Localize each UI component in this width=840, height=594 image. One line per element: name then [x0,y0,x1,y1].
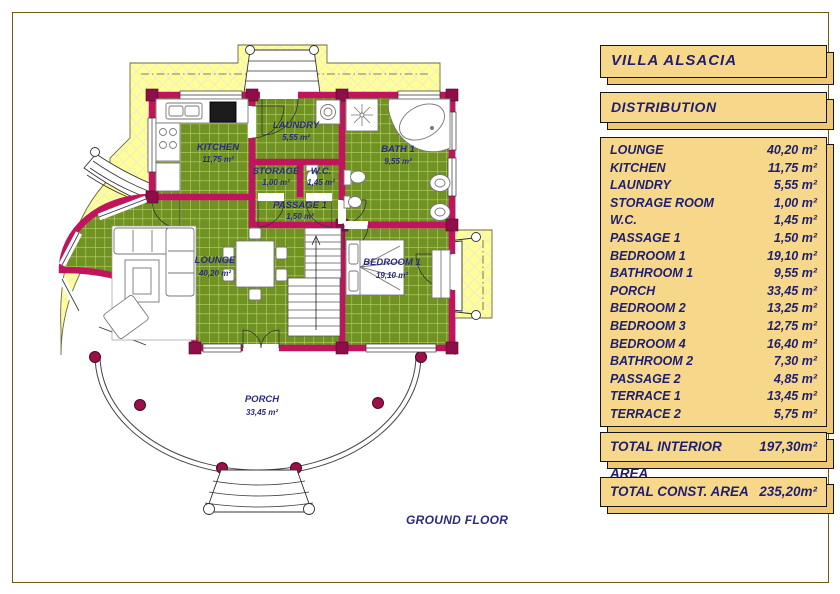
table-row: STORAGE ROOM1,00 m² [610,195,817,213]
row-name: TERRACE 1 [610,388,681,406]
label-wc: W.C. [311,166,331,177]
area-bedroom1: 19,10 m² [376,271,408,280]
total-const-label: TOTAL CONST. AREA [610,478,749,506]
table-row: LOUNGE40,20 m² [610,142,817,160]
row-name: BEDROOM 4 [610,336,686,354]
table-row: BATHROOM 19,55 m² [610,265,817,283]
row-name: LOUNGE [610,142,663,160]
total-const-box: TOTAL CONST. AREA 235,20m² [600,477,827,507]
area-bath1: 9,55 m² [384,157,412,166]
row-name: BEDROOM 1 [610,248,686,266]
distribution-title: DISTRIBUTION [611,99,717,115]
row-name: BEDROOM 2 [610,300,686,318]
row-area: 1,00 m² [774,195,817,213]
total-interior-value: 197,30m² [759,433,817,461]
row-area: 12,75 m² [767,318,817,336]
table-row: BEDROOM 416,40 m² [610,336,817,354]
row-area: 13,45 m² [767,388,817,406]
row-area: 16,40 m² [767,336,817,354]
table-row: BATHROOM 27,30 m² [610,353,817,371]
row-name: BATHROOM 2 [610,353,693,371]
row-area: 19,10 m² [767,248,817,266]
label-bedroom1: BEDROOM 1 [363,257,421,268]
area-porch: 33,45 m² [246,408,278,417]
label-passage1: PASSAGE 1 [273,200,327,211]
row-area: 7,30 m² [774,353,817,371]
row-area: 9,55 m² [774,265,817,283]
table-row: PASSAGE 11,50 m² [610,230,817,248]
row-area: 1,45 m² [774,212,817,230]
total-interior-box: TOTAL INTERIOR AREA 197,30m² [600,432,827,462]
row-area: 1,50 m² [774,230,817,248]
row-area: 5,75 m² [774,406,817,424]
table-row: W.C.1,45 m² [610,212,817,230]
area-lounge: 40,20 m² [198,269,231,278]
label-bath1: BATH 1 [381,144,415,155]
floor-title: GROUND FLOOR [406,513,508,527]
row-area: 33,45 m² [767,283,817,301]
total-interior-label: TOTAL INTERIOR AREA [610,433,759,461]
row-name: STORAGE ROOM [610,195,714,213]
area-passage1: 1,50 m² [286,212,314,221]
distribution-table: LOUNGE40,20 m² KITCHEN11,75 m² LAUNDRY5,… [600,137,827,427]
table-row: PORCH33,45 m² [610,283,817,301]
row-name: KITCHEN [610,160,666,178]
label-storage: STORAGE [253,166,300,177]
porch-front-steps [204,470,315,515]
row-name: TERRACE 2 [610,406,681,424]
row-area: 40,20 m² [767,142,817,160]
label-laundry: LAUNDRY [273,120,321,131]
label-kitchen: KITCHEN [197,142,240,153]
area-kitchen: 11,75 m² [202,155,234,164]
table-row: TERRACE 25,75 m² [610,406,817,424]
villa-title: VILLA ALSACIA [611,52,737,69]
row-area: 13,25 m² [767,300,817,318]
villa-title-box: VILLA ALSACIA [600,45,827,78]
table-row: BEDROOM 312,75 m² [610,318,817,336]
washing-machine [316,100,340,124]
table-row: LAUNDRY5,55 m² [610,177,817,195]
row-area: 11,75 m² [768,160,817,178]
row-name: W.C. [610,212,637,230]
row-name: LAUNDRY [610,177,671,195]
row-name: PASSAGE 2 [610,371,681,389]
area-storage: 1,00 m² [262,178,290,187]
row-area: 4,85 m² [774,371,817,389]
table-row: BEDROOM 213,25 m² [610,300,817,318]
drawing-sheet: KITCHEN 11,75 m² LAUNDRY 5,55 m² STORAGE… [0,0,840,594]
area-laundry: 5,55 m² [282,133,310,142]
table-row: TERRACE 113,45 m² [610,388,817,406]
area-wc: 1,45 m² [307,178,335,187]
top-steps [244,46,320,94]
row-name: PASSAGE 1 [610,230,681,248]
row-name: PORCH [610,283,655,301]
row-name: BEDROOM 3 [610,318,686,336]
total-const-value: 235,20m² [759,478,817,506]
table-row: PASSAGE 24,85 m² [610,371,817,389]
row-name: BATHROOM 1 [610,265,693,283]
table-row: BEDROOM 119,10 m² [610,248,817,266]
floor-plan-drawing: KITCHEN 11,75 m² LAUNDRY 5,55 m² STORAGE… [0,0,585,594]
distribution-header-box: DISTRIBUTION [600,92,827,123]
label-lounge: LOUNGE [195,255,236,266]
table-row: KITCHEN11,75 m² [610,160,817,178]
row-area: 5,55 m² [774,177,817,195]
label-porch: PORCH [245,394,280,405]
